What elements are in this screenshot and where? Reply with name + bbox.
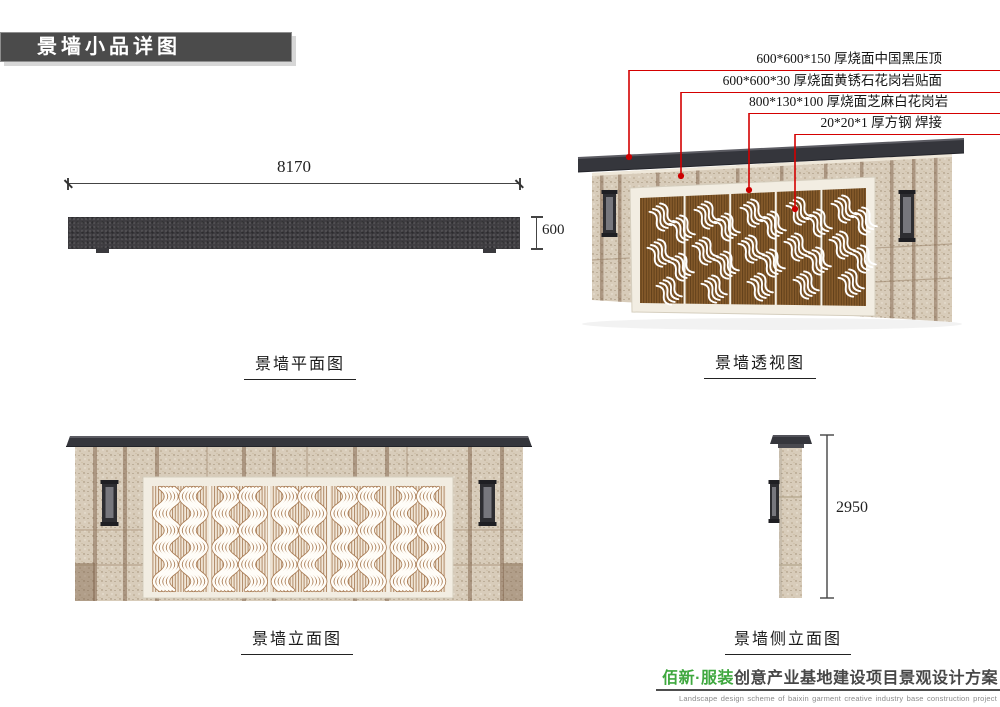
elev-sconce-left-icon	[101, 480, 119, 526]
persp-sconce-left-icon	[602, 190, 618, 237]
elev-cap	[66, 436, 532, 447]
plan-view-label: 景墙平面图	[244, 350, 356, 380]
plan-depth-dimension-line	[536, 217, 537, 249]
perspective-view-label: 景墙透视图	[704, 349, 816, 379]
side-view-label: 景墙侧立面图	[725, 625, 851, 655]
sheet-title: 景墙小品详图	[0, 32, 292, 62]
side-column-stone	[779, 448, 802, 598]
plan-wall-body	[68, 217, 520, 249]
project-footer: 佰新·服装创意产业基地建设项目景观设计方案 Landscape design s…	[656, 664, 1000, 703]
ground-shadow	[582, 318, 962, 330]
project-title-line: 佰新·服装创意产业基地建设项目景观设计方案	[656, 664, 1000, 688]
plan-sconce-left	[96, 248, 109, 253]
project-subtitle: Landscape design scheme of baixin garmen…	[656, 694, 1000, 703]
plan-width-dimension: 8170	[68, 157, 520, 177]
plan-sconce-right	[483, 248, 496, 253]
footer-rule	[656, 689, 1000, 691]
perspective-view	[560, 130, 1000, 375]
side-height-dimension: 2950	[836, 499, 868, 517]
plan-width-dimension-line	[68, 183, 520, 184]
dim-tick	[531, 216, 543, 218]
elevation-view	[60, 430, 535, 608]
callout-cap-stone: 600*600*150 厚烧面中国黑压顶	[629, 49, 1000, 71]
elev-sconce-right-icon	[479, 480, 497, 526]
elevation-view-label: 景墙立面图	[241, 625, 353, 655]
callout-steel-screen: 20*20*1 厚方钢 焊接	[795, 113, 1000, 135]
side-elevation-view	[700, 430, 880, 610]
project-brand: 佰新·服装	[662, 670, 734, 687]
side-sconce-icon	[769, 480, 780, 523]
drawing-sheet: { "title_block": { "text": "景墙小品详图" }, "…	[0, 0, 1000, 707]
side-cap	[770, 435, 812, 448]
dim-tick	[531, 248, 543, 250]
callout-wall-veneer: 600*600*30 厚烧面黄锈石花岗岩贴面	[681, 71, 1000, 93]
side-height-dimension-line	[820, 435, 834, 598]
persp-sconce-right-icon	[899, 190, 916, 242]
project-name: 创意产业基地建设项目景观设计方案	[734, 670, 998, 687]
callout-frame-granite: 800*130*100 厚烧面芝麻白花岗岩	[749, 92, 1000, 114]
